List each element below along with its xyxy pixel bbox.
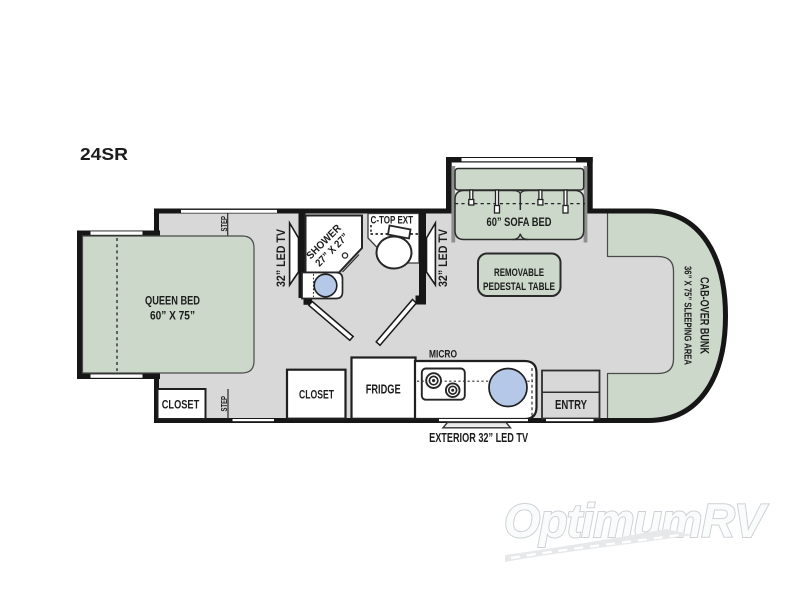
svg-text:36” X 75” SLEEPING AREA: 36” X 75” SLEEPING AREA (682, 266, 693, 365)
svg-text:CAB-OVER BUNK: CAB-OVER BUNK (698, 277, 710, 355)
svg-text:32” LED TV: 32” LED TV (438, 229, 450, 287)
svg-text:REMOVABLE: REMOVABLE (494, 267, 544, 279)
svg-text:CLOSET: CLOSET (299, 388, 334, 402)
svg-text:STEP: STEP (220, 396, 229, 412)
svg-text:PEDESTAL TABLE: PEDESTAL TABLE (483, 281, 555, 293)
svg-text:MICRO: MICRO (429, 348, 457, 360)
svg-text:24SR: 24SR (80, 144, 128, 164)
svg-text:32” LED TV: 32” LED TV (276, 229, 288, 287)
svg-text:C-TOP EXT: C-TOP EXT (371, 215, 414, 227)
svg-text:FRIDGE: FRIDGE (366, 383, 401, 397)
svg-text:60” SOFA BED: 60” SOFA BED (487, 215, 552, 229)
svg-text:60” X 75”: 60” X 75” (150, 309, 195, 323)
svg-text:STEP: STEP (220, 216, 229, 232)
svg-text:QUEEN BED: QUEEN BED (145, 294, 200, 308)
svg-text:ENTRY: ENTRY (555, 398, 588, 412)
svg-text:CLOSET: CLOSET (162, 398, 200, 412)
svg-text:EXTERIOR 32” LED TV: EXTERIOR 32” LED TV (429, 431, 528, 445)
